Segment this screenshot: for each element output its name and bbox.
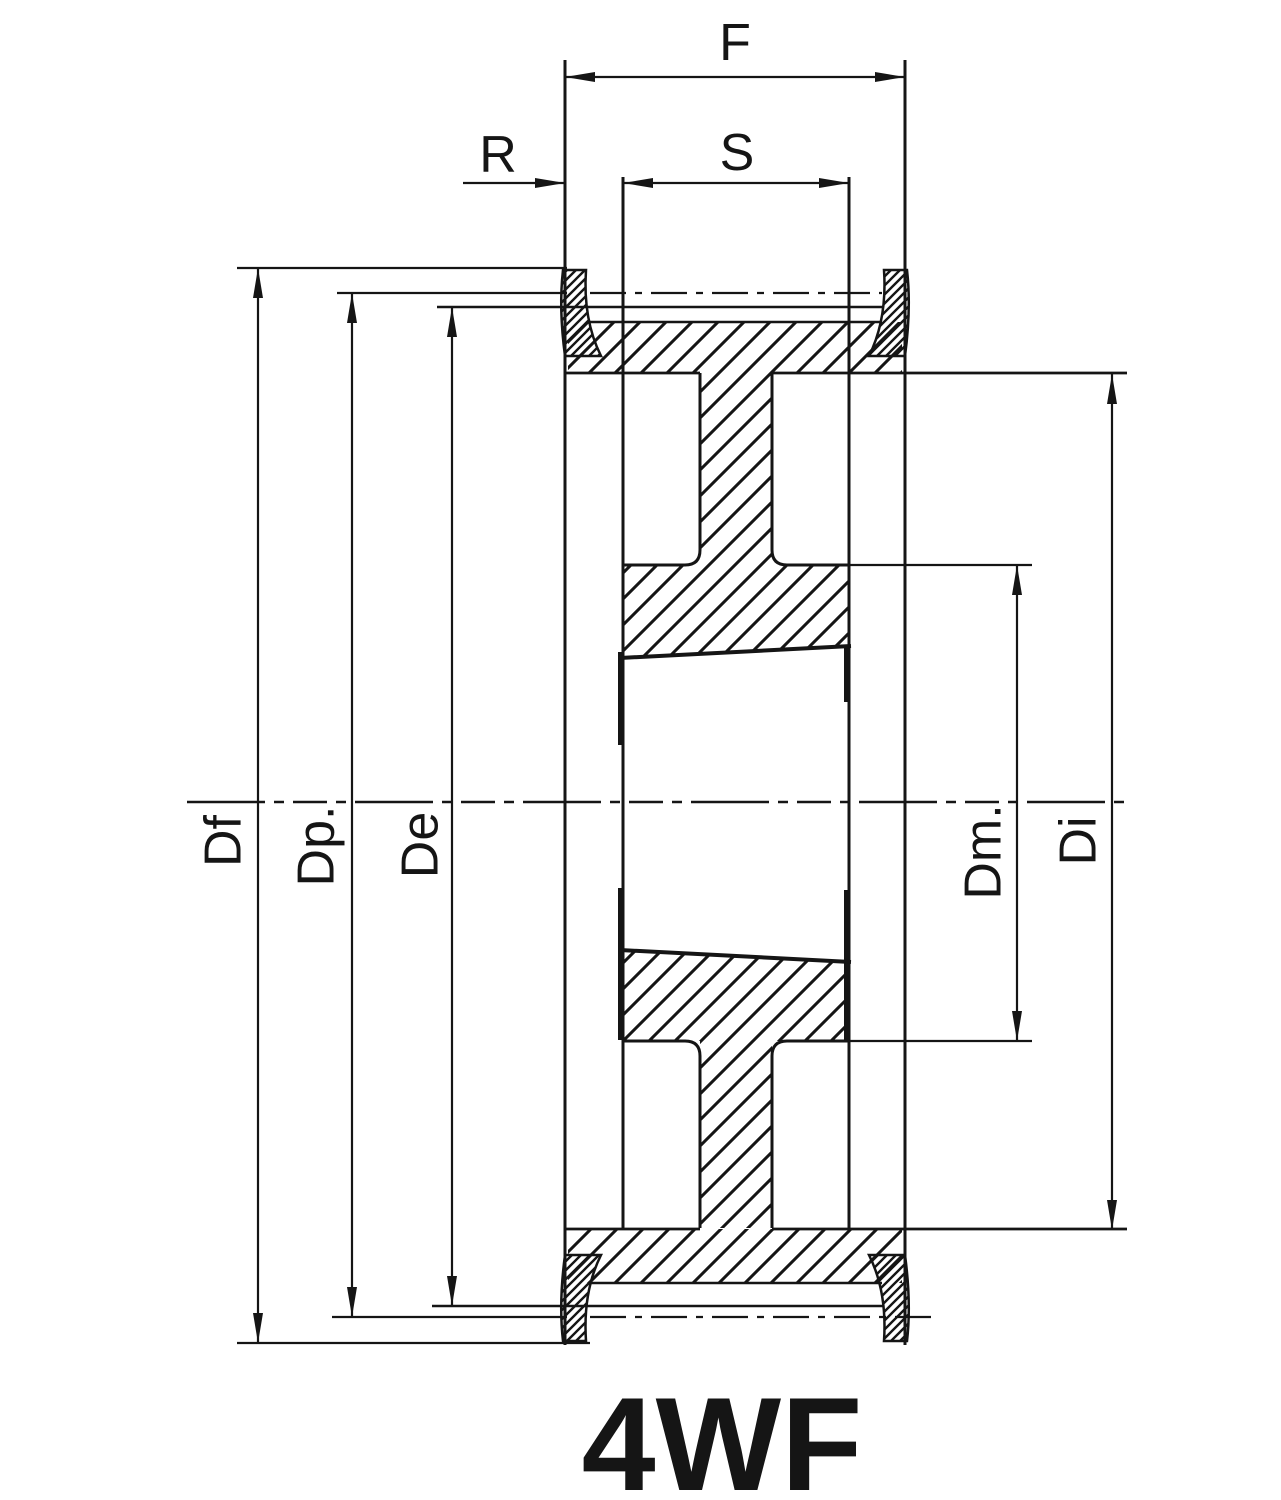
fillet-bottom-right [772,1041,787,1056]
dimension-lines [237,77,1112,1343]
flange-bottom-left [561,1255,601,1341]
arrow-de-top [447,307,457,337]
dim-label-df: Df [195,814,253,867]
dimension-labels: F R S Df Dp. De Dm. Di [195,14,1108,900]
part-outline [432,60,1127,1345]
dim-label-de: De [392,812,450,878]
arrow-di-bottom [1107,1200,1117,1230]
fillet-bottom-left [685,1041,700,1056]
arrow-f-left [565,72,595,82]
dim-label-di: Di [1050,816,1108,865]
dim-label-dp: Dp. [288,806,346,887]
part-title: 4WF [582,1371,863,1500]
web-section-top [700,373,772,565]
arrow-dp-bottom [347,1287,357,1317]
web-section-bottom [700,1041,772,1228]
arrow-r [535,178,565,188]
rim-section-top [568,322,902,373]
flange-bottom-right [869,1255,909,1341]
drawing-canvas: F R S Df Dp. De Dm. Di 4WF [0,0,1281,1500]
pulley-cross-section-drawing: F R S Df Dp. De Dm. Di 4WF [0,0,1281,1500]
flange-top-right [869,270,909,356]
hub-section-top [623,565,849,658]
arrow-dm-bottom [1012,1011,1022,1041]
flange-top-left [561,270,601,356]
arrow-dm-top [1012,565,1022,595]
arrow-s-right [819,178,849,188]
arrow-f-right [875,72,905,82]
arrow-s-left [623,178,653,188]
dim-label-s: S [720,124,755,182]
dim-label-dm: Dm. [955,804,1013,899]
arrow-de-bottom [447,1276,457,1306]
hub-section-bottom [623,950,849,1041]
dimension-arrows [253,72,1117,1343]
rim-section-bottom [568,1229,902,1283]
fillet-top-left [685,550,700,565]
dim-label-f: F [719,14,751,72]
arrow-df-bottom [253,1313,263,1343]
arrow-df-top [253,268,263,298]
dim-label-r: R [479,126,517,184]
fillet-top-right [772,550,787,565]
arrow-dp-top [347,293,357,323]
arrow-di-top [1107,374,1117,404]
